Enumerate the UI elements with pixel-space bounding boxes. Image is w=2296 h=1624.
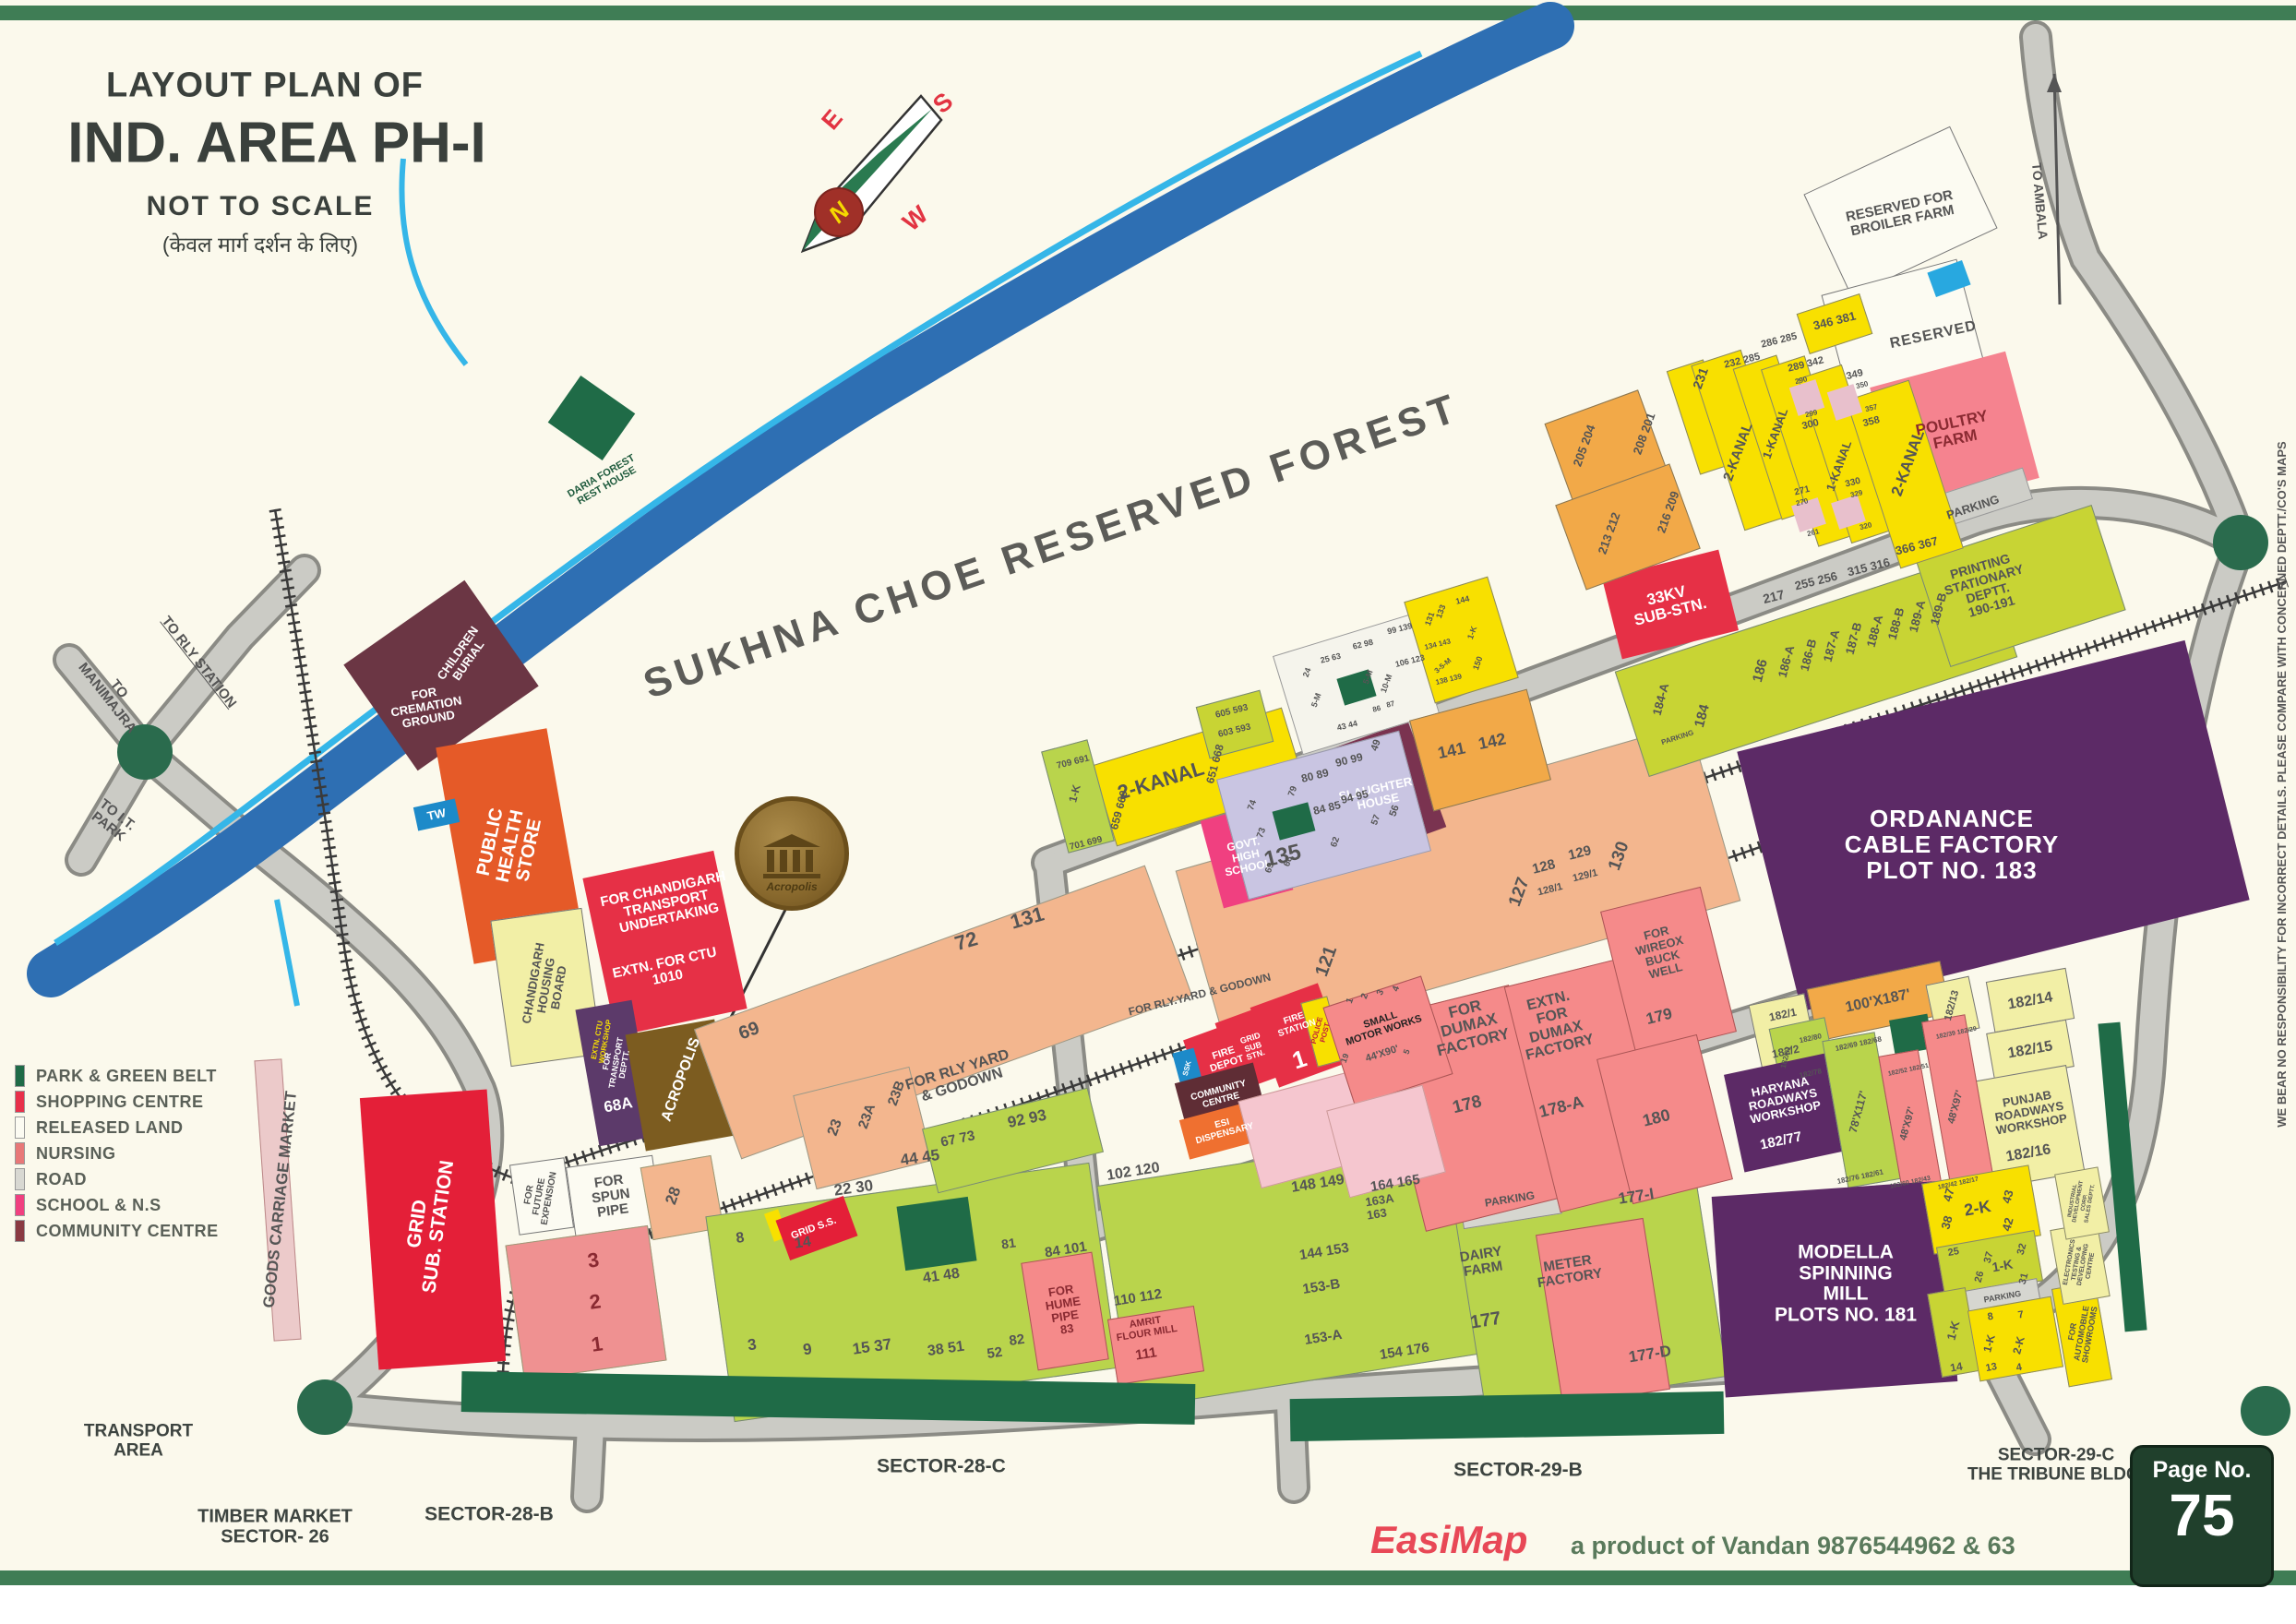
legend-color-tick: [15, 1065, 25, 1087]
legend-label: PARK & GREEN BELT: [36, 1067, 217, 1086]
stream-short: [277, 900, 297, 1006]
legend-color-tick: [15, 1116, 25, 1139]
compass-n-circle: N: [814, 187, 864, 237]
legend-color-tick: [15, 1194, 25, 1216]
page-number-label: Page No.: [2133, 1457, 2271, 1484]
map-label: SECTOR-29-C THE TRIBUNE BLDG.: [1967, 1446, 2145, 1484]
legend-color-tick: [15, 1168, 25, 1190]
map-label: SECTOR-28-C: [877, 1457, 1006, 1478]
map-label: 13: [1985, 1362, 1998, 1375]
page-number-value: 75: [2133, 1486, 2271, 1545]
temple-icon: [759, 832, 824, 880]
product-credit: a product of Vandan 9876544962 & 63: [1571, 1532, 2015, 1560]
legend-item: RELEASED LAND: [15, 1115, 219, 1140]
stream-branch: [401, 159, 466, 364]
map-label: 52: [987, 1345, 1004, 1362]
legend-item: ROAD: [15, 1166, 219, 1192]
legend-item: SHOPPING CENTRE: [15, 1089, 219, 1115]
coin-caption: Acropolis: [766, 880, 817, 893]
legend-color-tick: [15, 1142, 25, 1164]
roundabout-bottom: [297, 1379, 353, 1435]
map-label: WE BEAR NO RESPONSIBILITY FOR INCORRECT …: [2276, 441, 2289, 1127]
roundabout-bottomright: [2241, 1386, 2290, 1436]
map-label: 81: [1000, 1236, 1017, 1251]
map-subtitle-scale: NOT TO SCALE: [147, 191, 375, 222]
legend-label: SCHOOL & N.S: [36, 1196, 161, 1215]
legend-label: ROAD: [36, 1170, 87, 1189]
legend-color-tick: [15, 1091, 25, 1113]
legend-color-tick: [15, 1220, 25, 1242]
map-subtitle-hindi: (केवल मार्ग दर्शन के लिए): [162, 229, 358, 258]
easimap-logo: EasiMap: [1370, 1518, 1527, 1562]
map-label: 14: [794, 1234, 812, 1252]
map-label: 14: [1949, 1360, 1963, 1374]
legend-item: NURSING: [15, 1140, 219, 1166]
legend-label: SHOPPING CENTRE: [36, 1093, 204, 1112]
layout-plan-page: LAYOUT PLAN OF IND. AREA PH-I NOT TO SCA…: [0, 0, 2296, 1624]
compass-n: N: [822, 196, 855, 228]
acropolis-coin: Acropolis: [735, 796, 849, 911]
legend-item: COMMUNITY CENTRE: [15, 1218, 219, 1244]
map-label: MODELLA SPINNING MILL PLOTS NO. 181: [1775, 1243, 1917, 1327]
map-label: 25: [1947, 1247, 1960, 1260]
map-label: SECTOR-28-B: [425, 1505, 554, 1526]
map-label: ORDANANCE CABLE FACTORY PLOT NO. 183: [1845, 806, 2060, 883]
park-plot-a: [897, 1197, 977, 1271]
map-label: FOR SPUN PIPE: [589, 1172, 633, 1222]
legend-label: COMMUNITY CENTRE: [36, 1222, 219, 1241]
page-number-box: Page No. 75: [2130, 1445, 2274, 1587]
map-label: 82: [1009, 1332, 1026, 1349]
map-label: TRANSPORT AREA: [84, 1422, 193, 1460]
map-label: TIMBER MARKET SECTOR- 26: [197, 1507, 353, 1546]
green-belt-b: [1290, 1391, 1725, 1441]
legend-label: RELEASED LAND: [36, 1118, 184, 1138]
legend: PARK & GREEN BELTSHOPPING CENTRERELEASED…: [15, 1063, 219, 1244]
legend-item: SCHOOL & N.S: [15, 1192, 219, 1218]
legend-item: PARK & GREEN BELT: [15, 1063, 219, 1089]
legend-label: NURSING: [36, 1144, 116, 1164]
roundabout-topright: [2213, 515, 2268, 570]
map-title-line1: LAYOUT PLAN OF: [106, 66, 424, 106]
map-title-line2: IND. AREA PH-I: [67, 111, 486, 176]
map-label: SECTOR-29-B: [1453, 1461, 1583, 1482]
